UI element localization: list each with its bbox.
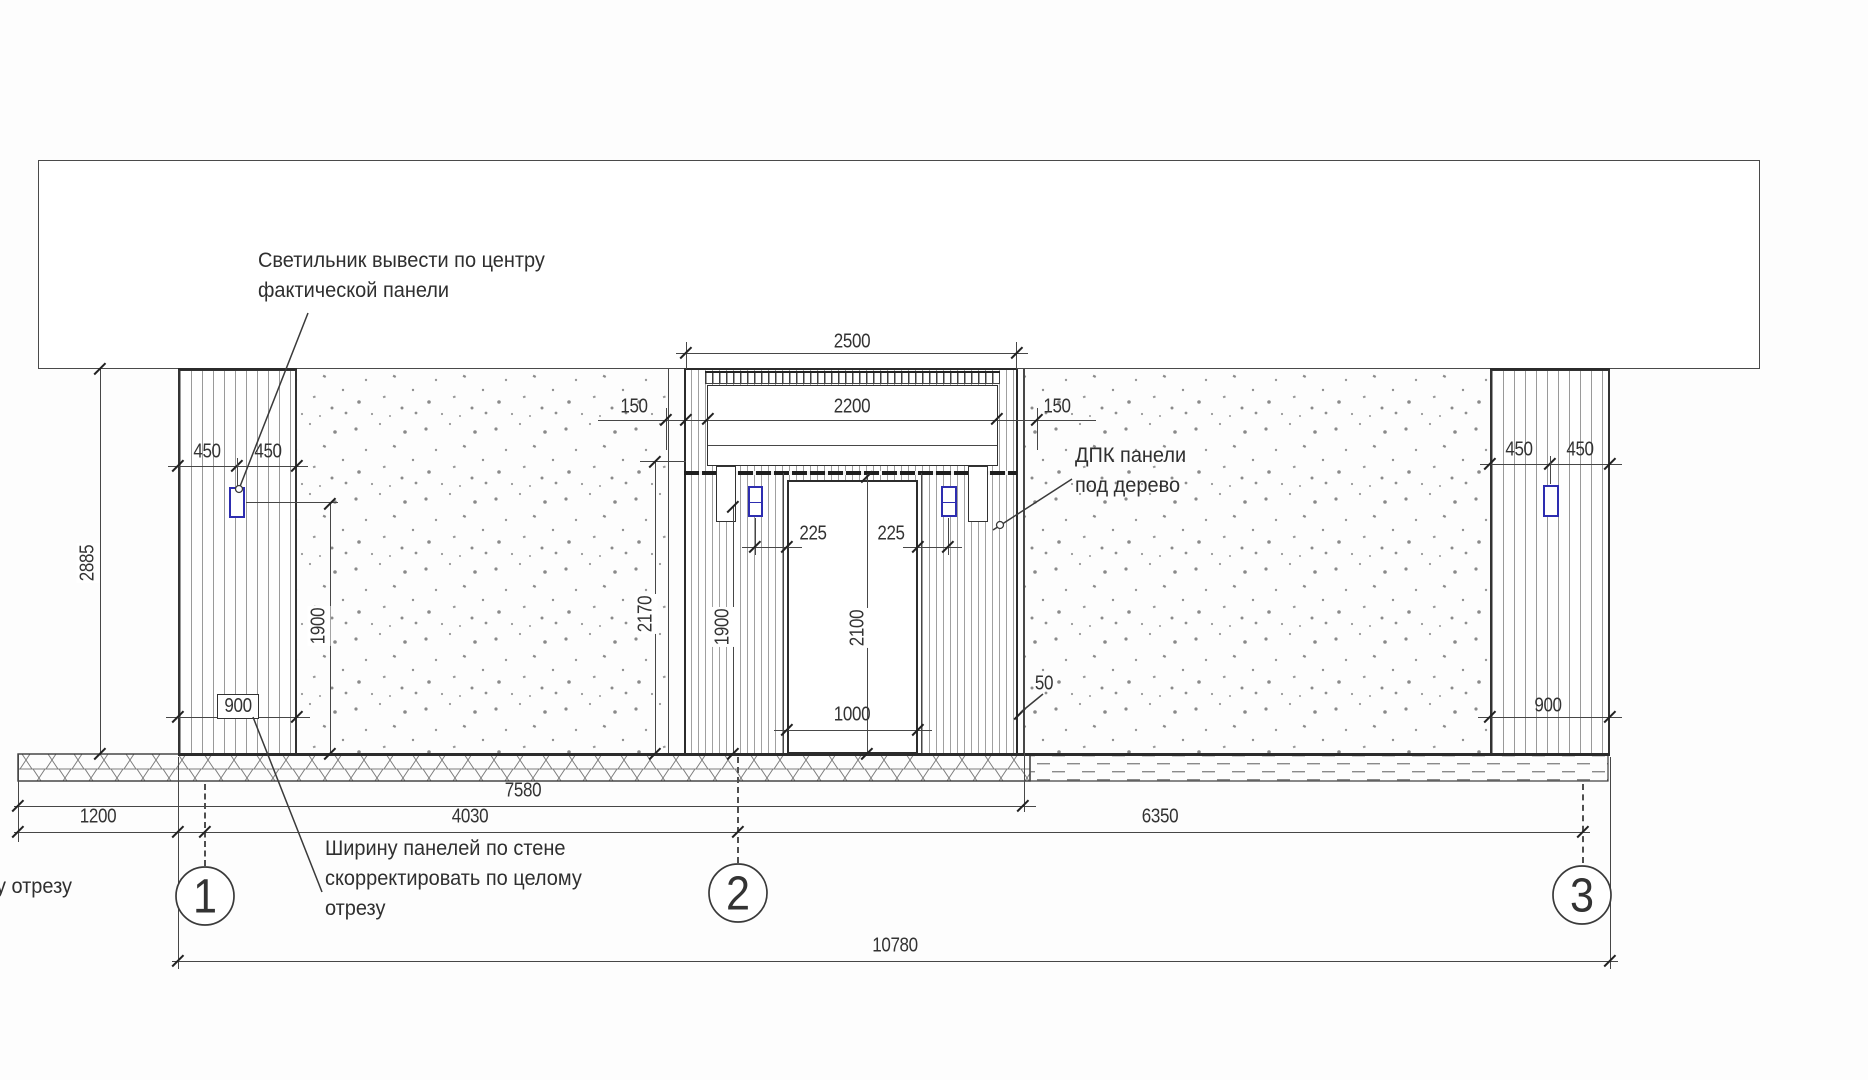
wall-top-line xyxy=(1490,368,1610,370)
extension-line xyxy=(640,461,686,462)
dpk-panels-note: ДПК панели под дерево xyxy=(1075,441,1186,501)
entrance-frame-left-edge xyxy=(684,369,686,755)
door-opening-left xyxy=(783,473,784,754)
dim-label-span-2-3: 6350 xyxy=(1142,806,1178,829)
wall-base-line xyxy=(178,753,1610,756)
dim-line-row2 xyxy=(14,832,1590,833)
pavement-dashed xyxy=(1030,754,1608,781)
extension-line xyxy=(1550,456,1551,484)
wall-top-line xyxy=(684,368,1017,370)
dim-label-pavement-left: 1200 xyxy=(80,806,116,829)
extension-line xyxy=(686,342,687,369)
left-edge-text-fragment: у отрезу xyxy=(0,872,72,902)
grid-axis-2 xyxy=(737,757,739,863)
dim-label-light-height-left: 1900 xyxy=(308,606,331,646)
light-fixture-note: Светильник вывести по центру фактической… xyxy=(258,246,545,306)
dpk-panels-note-line2: под дерево xyxy=(1075,471,1186,501)
grid-marker-3: 3 xyxy=(1570,869,1594,924)
dim-label-door-width: 1000 xyxy=(834,704,870,727)
dim-line-7580 xyxy=(14,806,1036,807)
extension-line xyxy=(666,408,667,450)
extension-line xyxy=(755,518,756,555)
pavement-honeycomb xyxy=(18,754,1030,781)
dim-label-opening-width: 2500 xyxy=(834,331,870,354)
dim-label-gap: 50 xyxy=(1035,673,1053,696)
wall-section-right-speckled xyxy=(1023,369,1490,755)
light-fixture-note-line1: Светильник вывести по центру xyxy=(258,246,545,276)
extension-line xyxy=(948,518,949,555)
dim-label-span-1-2: 4030 xyxy=(452,806,488,829)
dim-label-signboard-width: 2200 xyxy=(834,396,870,419)
dim-label-panel-left-a: 450 xyxy=(193,441,220,464)
signboard-top-hatch xyxy=(705,371,1000,384)
dim-label-wall-height: 2885 xyxy=(77,543,100,583)
dim-line-10780 xyxy=(172,961,1618,962)
light-fixture-door-right xyxy=(941,486,957,517)
dim-label-panel-width-right: 900 xyxy=(1534,695,1561,718)
extension-line xyxy=(1037,408,1038,450)
door-bracket-right xyxy=(968,466,988,522)
extension-line xyxy=(237,458,238,486)
light-fixture-door-left xyxy=(748,486,763,517)
grid-axis-1 xyxy=(204,784,206,866)
dim-label-door-height: 2100 xyxy=(847,608,870,648)
wall-top-line xyxy=(178,368,297,370)
wall-edge-line xyxy=(668,369,669,755)
dim-label-panel-right-b: 450 xyxy=(1566,439,1593,462)
wall-section-left-speckled xyxy=(297,369,668,755)
wall-edge-line xyxy=(1023,369,1025,755)
dim-label-total-entry: 7580 xyxy=(505,780,541,803)
grid-axis-3 xyxy=(1582,784,1584,863)
dpk-panels-note-line1: ДПК панели xyxy=(1075,441,1186,471)
dim-line-150-right xyxy=(1008,420,1096,421)
light-fixture-panel-right xyxy=(1543,485,1559,517)
dim-label-light-offset-left: 225 xyxy=(799,523,826,546)
extension-line xyxy=(178,757,179,969)
dim-label-panel-left-b: 450 xyxy=(254,441,281,464)
panel-width-note-line2: скорректировать по целому xyxy=(325,864,582,894)
dim-line-1000 xyxy=(774,730,932,731)
light-fixture-panel-left xyxy=(229,487,245,518)
elevation-drawing: 2500 150 2200 150 450 450 450 450 2885 1… xyxy=(0,0,1868,1080)
panel-width-note-line3: отрезу xyxy=(325,894,582,924)
dim-label-offset-right: 150 xyxy=(1043,396,1070,419)
door-opening-right xyxy=(921,473,922,754)
dim-line-2885 xyxy=(100,369,101,755)
panel-width-note-line1: Ширину панелей по стене xyxy=(325,834,582,864)
dim-line-2200 xyxy=(698,420,1010,421)
grid-marker-1: 1 xyxy=(193,870,217,925)
signboard-divider xyxy=(708,445,997,446)
grid-marker-2: 2 xyxy=(726,867,750,922)
dim-label-light-height-center: 1900 xyxy=(712,607,735,647)
dim-label-total: 10780 xyxy=(872,935,918,958)
dim-label-offset-left: 150 xyxy=(620,396,647,419)
dim-label-entry-height: 2170 xyxy=(635,594,658,634)
extension-line xyxy=(246,502,338,503)
dim-label-panel-width-left: 900 xyxy=(217,694,259,719)
entrance-frame-right-edge xyxy=(1016,369,1018,755)
extension-line xyxy=(1024,715,1025,812)
dim-line-225-right xyxy=(903,547,962,548)
light-fixture-note-line2: фактической панели xyxy=(258,276,545,306)
extension-line xyxy=(1610,757,1611,969)
dim-label-light-offset-right: 225 xyxy=(877,523,904,546)
panel-width-note: Ширину панелей по стене скорректировать … xyxy=(325,834,582,924)
dim-label-panel-right-a: 450 xyxy=(1505,439,1532,462)
